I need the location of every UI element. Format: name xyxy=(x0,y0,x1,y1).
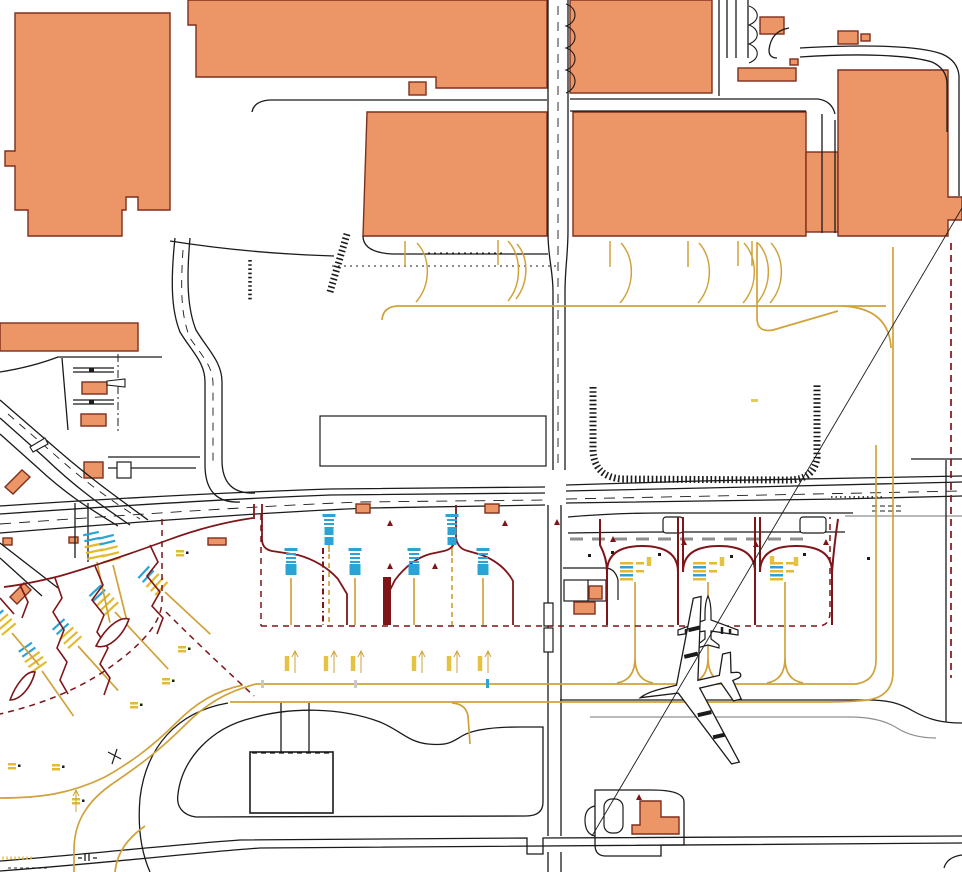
gate-cluster-c3-stopbox xyxy=(350,564,361,575)
island-curb-e2 xyxy=(800,517,826,533)
gate-cluster-c6-bar xyxy=(478,553,488,555)
hydrant-marker-dot xyxy=(188,648,191,651)
gate-cluster-c5-bar xyxy=(447,523,457,525)
gate-cluster-c1-bar xyxy=(286,553,296,555)
road-loop-island xyxy=(178,710,543,817)
gate-cluster-c4-bar xyxy=(409,553,419,555)
road-loop-outer xyxy=(139,703,228,872)
aircraft-taxiing-body xyxy=(621,592,760,781)
island-orange-3 xyxy=(208,538,226,545)
gate-cluster-e3-bar-s xyxy=(786,562,794,565)
building-small-2 xyxy=(838,31,858,44)
taxiline-arc-row xyxy=(405,240,781,303)
hydrant-marker xyxy=(162,682,170,685)
white-arrow-2 xyxy=(107,379,125,387)
hydrant-marker-dot xyxy=(62,766,65,769)
island-curb-e1 xyxy=(663,517,683,533)
road-br-edge xyxy=(560,700,962,723)
gate-label-bars xyxy=(287,556,796,671)
gate-cluster-e3-bar xyxy=(770,566,783,569)
gate-cluster-c4-cap xyxy=(408,548,421,551)
hatch-walkway-u xyxy=(593,385,817,480)
building-apron-e-1 xyxy=(574,602,595,614)
road-gap-north xyxy=(252,100,547,112)
building-terminal-c xyxy=(363,112,547,236)
gate-cluster-e1 xyxy=(620,562,644,581)
stop-triangle xyxy=(636,794,642,800)
building-terminal-ne xyxy=(570,0,712,93)
hydrant-marker xyxy=(178,650,186,653)
gate-cluster-e2 xyxy=(693,562,717,581)
building-strip-w xyxy=(0,323,138,351)
road-ew-edge-2 xyxy=(0,482,962,514)
apron-zigzag-4 xyxy=(53,578,68,694)
gate-cluster-e1-bar-s xyxy=(636,562,644,565)
building-shelter-1 xyxy=(5,470,30,494)
taxiline-link-diag xyxy=(757,242,838,331)
building-small-6 xyxy=(84,462,103,478)
island-orange-1 xyxy=(356,504,370,513)
marker-dot xyxy=(867,557,870,560)
gate-cluster-e3-bar xyxy=(770,574,783,577)
gate-cluster-c1 xyxy=(285,548,298,575)
gate-cluster-c5-stopbox xyxy=(448,527,457,535)
gate-cluster-c3-bar xyxy=(350,553,360,555)
structure-outline-1 xyxy=(117,462,131,478)
gate-angled-f2-leadline xyxy=(113,565,128,623)
road-ne-v2 xyxy=(736,0,748,58)
stop-triangle xyxy=(432,563,438,569)
building-square-south xyxy=(250,752,333,813)
gate-cluster-e2-bar xyxy=(693,570,706,573)
building-small-4 xyxy=(738,68,796,81)
road-ne-v1 xyxy=(719,0,727,96)
hydrant-marker xyxy=(8,763,16,766)
gate-cluster-e1-bar xyxy=(620,574,633,577)
taxiline-branch-south xyxy=(452,703,470,744)
airport-site-plan-page xyxy=(0,0,962,872)
gate-cluster-c6-stopbox xyxy=(478,564,489,575)
gate-cluster-c2-stopbox xyxy=(325,527,334,535)
road-under-terminal-n xyxy=(170,236,548,256)
building-ne-large xyxy=(838,70,962,236)
gate-cluster-c1-bar xyxy=(286,557,296,559)
gate-cluster-e2-bar-s xyxy=(709,562,717,565)
gate-cluster-c3-bar xyxy=(350,557,360,559)
gate-cluster-c3 xyxy=(349,548,362,575)
gate-cluster-c5-stopbox xyxy=(448,537,457,545)
marker-dot xyxy=(588,554,591,557)
building-small-3 xyxy=(861,34,870,41)
marker-dot xyxy=(611,551,614,554)
gate-cluster-e1-bar xyxy=(620,570,633,573)
gate-cluster-e3-bar xyxy=(770,578,783,581)
gate-cluster-c5-cap xyxy=(446,514,459,517)
taxiline-tick-gray-1 xyxy=(261,680,264,688)
gate-angled-a-blue-ticks xyxy=(138,566,153,582)
road-b1-south xyxy=(172,238,255,502)
stop-triangle xyxy=(753,541,759,547)
gate-angled-e-yellow-ticks xyxy=(0,614,16,635)
stop-triangle xyxy=(387,563,393,569)
gate-cluster-c2-bar xyxy=(324,519,334,521)
taxiline-tick-blue xyxy=(486,679,489,688)
road-br-gray xyxy=(590,717,936,738)
hatch-walkway-diag xyxy=(330,234,347,292)
gate-angled-f2 xyxy=(97,535,136,626)
hydrant-marker xyxy=(176,550,184,553)
arrow-marks-bl xyxy=(108,749,121,764)
gate-angled-c-blue-ticks xyxy=(53,619,69,634)
gate-cluster-c2-stopbox xyxy=(325,537,334,545)
gate-angled-a xyxy=(138,566,217,641)
marker-dot xyxy=(803,553,806,556)
gate-cluster-c6-bar xyxy=(478,557,488,559)
building-fuel-1 xyxy=(82,382,107,394)
hydrant-marker-dot xyxy=(140,704,143,707)
gate-cluster-e1-bar xyxy=(620,578,633,581)
hydrant-marker xyxy=(162,678,170,681)
building-small-5 xyxy=(790,59,798,65)
building-terminal-e xyxy=(573,112,806,236)
compound-se-stub xyxy=(585,806,595,836)
gate-cluster-c5-bar xyxy=(447,519,457,521)
road-junction-sw xyxy=(0,503,88,596)
hydrant-marker xyxy=(52,768,60,771)
section-line xyxy=(592,208,962,836)
hydrant-marker-dot xyxy=(186,552,189,555)
gate-cluster-c4-bar xyxy=(409,561,419,563)
gate-cluster-c1-bar xyxy=(286,561,296,563)
hydrant-marker xyxy=(130,706,138,709)
hydrant-marker xyxy=(52,764,60,767)
gate-cluster-e2-bar xyxy=(693,566,706,569)
hydrant-marker-dot xyxy=(82,800,85,803)
small-yellow-tick xyxy=(751,399,758,402)
road-b1-south-centerline xyxy=(182,250,213,462)
gate-cluster-c6 xyxy=(477,548,490,575)
gate-angled-a-leadline xyxy=(165,592,210,634)
road-vertical-south xyxy=(548,505,561,872)
blast-lens-2 xyxy=(10,672,35,700)
marker-dot xyxy=(658,553,661,556)
aircraft-taxiing xyxy=(621,592,760,781)
gate-cluster-e3-bar xyxy=(770,570,783,573)
stop-triangle xyxy=(502,520,508,526)
road-corner-br xyxy=(944,855,962,868)
gate-cluster-c2-bar xyxy=(324,523,334,525)
gate-cluster-c4-bar xyxy=(409,557,419,559)
taxiline-upper-h xyxy=(382,306,886,320)
gate-cluster-e2-bar xyxy=(693,562,706,565)
gate-cluster-c4-stopbox xyxy=(409,564,420,575)
hydrant-marker xyxy=(176,554,184,557)
parking-scallops-2 xyxy=(749,6,757,63)
hydrant-marker xyxy=(178,646,186,649)
hydrant-marker xyxy=(8,767,16,770)
site-plan xyxy=(0,0,962,872)
road-ew-edge-1 xyxy=(0,476,962,506)
gate-angled-f1-blue-ticks xyxy=(83,532,100,541)
taxiline-tick-gray-2 xyxy=(354,680,357,688)
island-orange-2 xyxy=(485,504,499,513)
hydrant-marker xyxy=(130,702,138,705)
building-terminal-n xyxy=(188,0,547,88)
gate-cluster-e1-bar xyxy=(620,562,633,565)
apron-boundary-dash-4 xyxy=(166,612,254,696)
building-fuel-2 xyxy=(81,414,106,426)
gate-cluster-c1-stopbox xyxy=(286,564,297,575)
gate-cluster-c6-bar xyxy=(478,561,488,563)
gate-cluster-c4 xyxy=(408,548,421,575)
building-apron-e-2 xyxy=(589,586,602,599)
building-tiny-2 xyxy=(69,537,78,543)
building-se-l xyxy=(632,801,679,834)
gate-cluster-e2-bar xyxy=(693,578,706,581)
gate-cluster-c2 xyxy=(323,514,336,545)
gate-cluster-c1-cap xyxy=(285,548,298,551)
road-west-top xyxy=(0,357,162,372)
gate-angled-d-leadline xyxy=(42,671,74,716)
gate-cluster-e2-bar-s xyxy=(709,570,717,573)
fuel-pump-2 xyxy=(89,400,94,404)
fuel-pump-1 xyxy=(89,368,94,372)
white-arrow-1 xyxy=(30,438,48,452)
gate-cluster-c2-cap xyxy=(323,514,336,517)
gate-cluster-c3-cap xyxy=(349,548,362,551)
struct-narrow-2 xyxy=(544,628,553,652)
hydrant-marker-dot xyxy=(172,680,175,683)
stop-triangle xyxy=(823,539,829,545)
gate-cluster-c3-bar xyxy=(350,561,360,563)
gate-cluster-e2-bar xyxy=(693,574,706,577)
stop-triangle xyxy=(554,519,560,525)
gate-cluster-e3 xyxy=(770,562,794,581)
apron-zigzag-1 xyxy=(4,518,253,587)
gate-cluster-c6-cap xyxy=(477,548,490,551)
hydrant-marker-dot xyxy=(18,765,21,768)
gate-angled-a-yellow-ticks xyxy=(146,574,167,595)
gate-cluster-e1-bar-s xyxy=(636,570,644,573)
stop-triangle xyxy=(387,520,393,526)
gate-cluster-e1-bar xyxy=(620,566,633,569)
compound-se-round xyxy=(604,799,623,833)
building-annex-small xyxy=(409,82,426,95)
struct-narrow-1 xyxy=(544,603,553,626)
gate-cluster-e3-bar-s xyxy=(786,570,794,573)
marker-dot xyxy=(730,555,733,558)
building-tiny-1 xyxy=(3,538,12,545)
curb-strip xyxy=(320,416,546,466)
blast-fence-bar xyxy=(383,577,391,625)
building-terminal-nw xyxy=(5,13,170,236)
